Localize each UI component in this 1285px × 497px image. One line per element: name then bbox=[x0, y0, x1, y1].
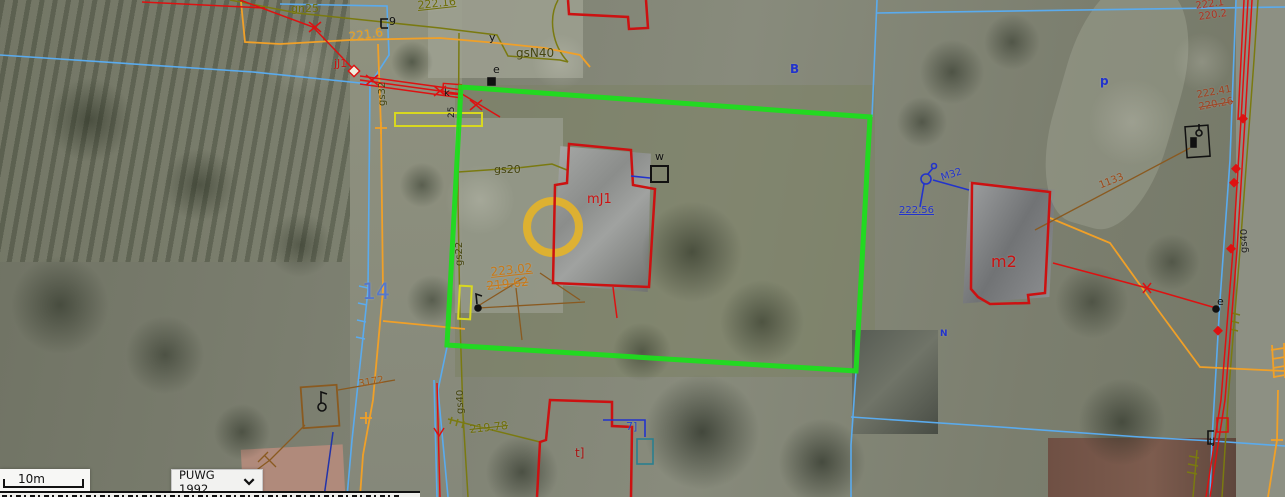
map-label: gs40 bbox=[456, 390, 466, 414]
map-label: mJ1 bbox=[587, 193, 612, 206]
map-label: gn25 bbox=[291, 3, 319, 14]
map-label: w bbox=[655, 151, 664, 162]
sewer-lines bbox=[210, 148, 1190, 497]
map-overlay bbox=[0, 0, 1285, 497]
map-label: gs32 bbox=[378, 82, 388, 106]
map-label: 7] bbox=[626, 421, 637, 432]
map-viewport[interactable]: gn25222.16gsN40gs20gs22gs32gs40gs40219.7… bbox=[0, 0, 1285, 497]
survey-yellow-shapes bbox=[395, 113, 482, 319]
building-m2-outline bbox=[971, 183, 1050, 304]
map-label: 25 bbox=[448, 107, 457, 118]
scale-bar-rule bbox=[3, 479, 84, 488]
building-bottom-outline bbox=[537, 400, 632, 497]
map-label: gsN40 bbox=[516, 47, 554, 59]
map-label: 222.56 bbox=[899, 206, 934, 216]
map-label: e bbox=[1217, 296, 1224, 307]
teal-annotation-box bbox=[637, 439, 653, 464]
building-top-outline bbox=[568, 0, 648, 29]
map-label: t] bbox=[575, 447, 584, 459]
map-label: gs40 bbox=[1240, 229, 1250, 253]
map-label: gs22 bbox=[455, 242, 465, 266]
parcel-boundary-lines bbox=[0, 0, 1285, 497]
map-label: jJ1 bbox=[334, 58, 347, 69]
highlight-parcel-outline bbox=[447, 87, 870, 371]
map-label: e bbox=[493, 64, 500, 75]
navy-boundary-segment bbox=[324, 432, 333, 497]
map-label: p bbox=[1100, 75, 1109, 87]
map-label: N bbox=[940, 330, 948, 339]
chevron-down-icon bbox=[243, 478, 255, 486]
building-m1-outline bbox=[553, 144, 655, 287]
attribution-strip bbox=[0, 491, 420, 497]
survey-square bbox=[301, 385, 340, 428]
valve-diamond-marker bbox=[348, 65, 359, 76]
map-label: tJ bbox=[1209, 438, 1215, 447]
map-label: gs20 bbox=[494, 164, 521, 175]
heat-duct-lines bbox=[142, 0, 1252, 497]
map-label: 9 bbox=[389, 16, 396, 27]
map-label: 14 bbox=[362, 282, 390, 304]
map-label: B bbox=[790, 63, 799, 75]
power-utility-lines bbox=[241, 2, 1285, 497]
map-label: m2 bbox=[991, 254, 1017, 270]
map-label: k bbox=[444, 89, 450, 99]
map-label: y bbox=[489, 32, 496, 43]
